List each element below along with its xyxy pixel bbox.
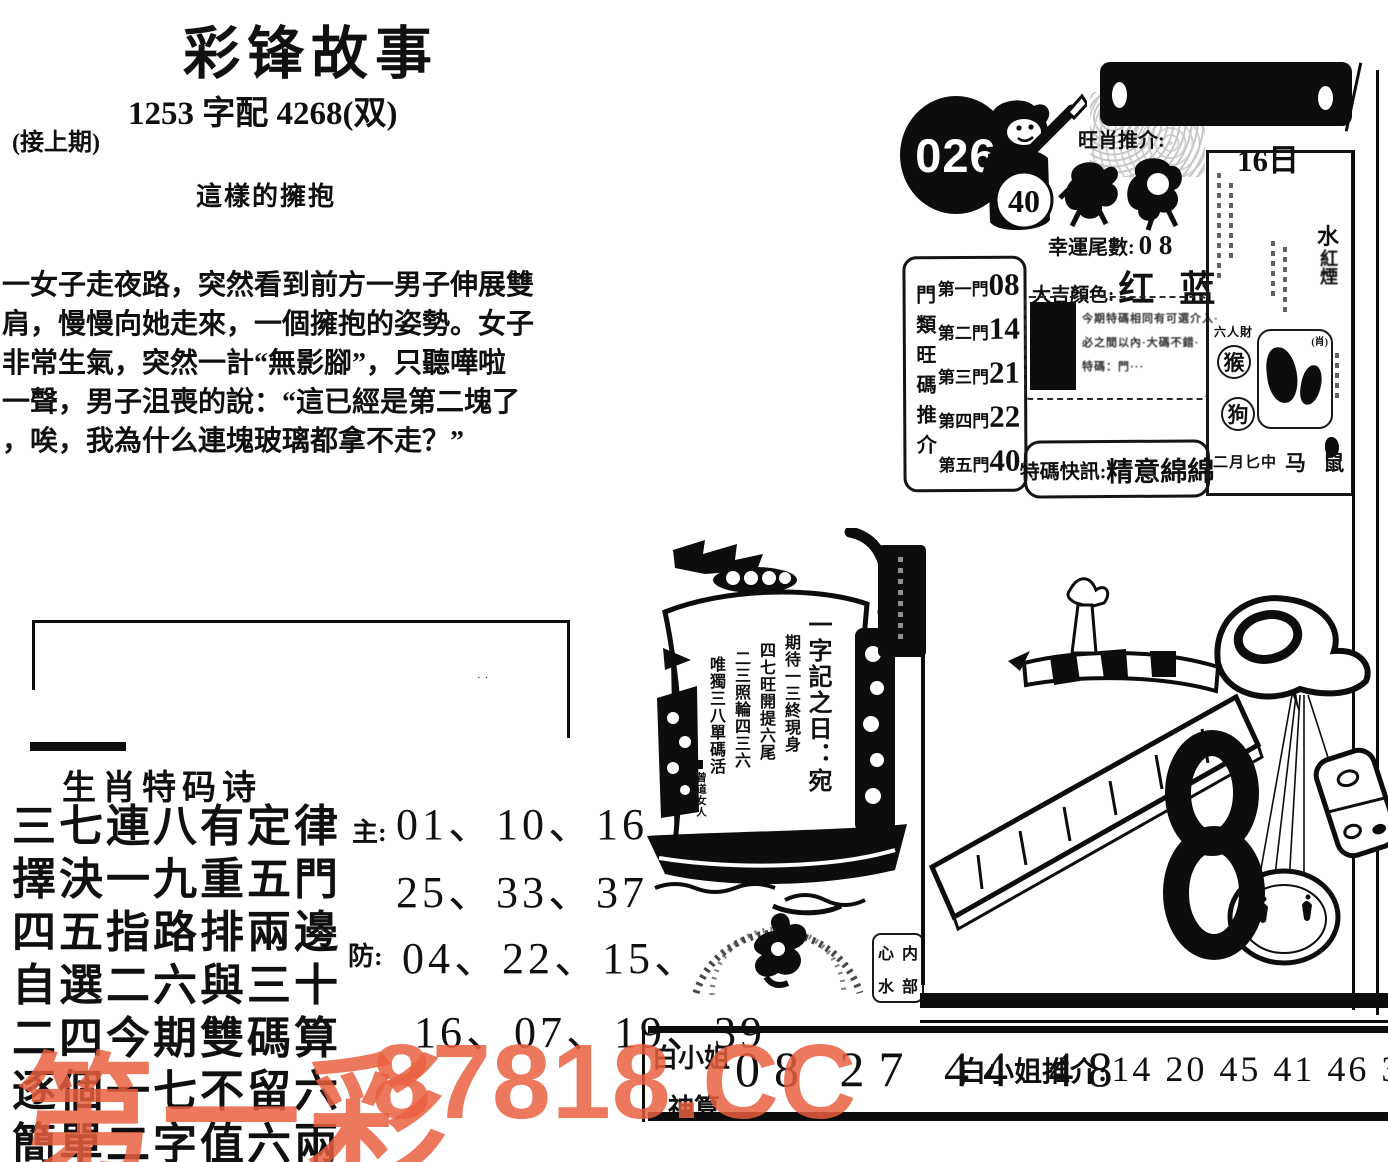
gate-num: 21 xyxy=(989,355,1020,390)
gate-name: 第三門 xyxy=(938,368,989,387)
watermark-code: 87818.CC xyxy=(372,1022,857,1143)
sail-headline: 一字記之日：宛 xyxy=(800,612,835,862)
poem-line: 四五指路排兩邊 xyxy=(12,906,341,959)
tip-note-box: 今期特碼相同有可選介入· 必之間以內·大碼不錯· 特碼：門··· xyxy=(1024,296,1208,400)
figure-eight-shape xyxy=(1176,743,1252,947)
almanac-garble-right xyxy=(1335,353,1339,401)
rule-illustration-bottom-thin xyxy=(920,1020,1388,1023)
banner-dot-left xyxy=(1112,82,1127,108)
almanac-people-note: 六人財 xyxy=(1214,323,1253,340)
gate-box-side-label: 門類旺碼推介 xyxy=(905,259,938,489)
special-code-flash-box: 特碼快訊: 精意綿綿 xyxy=(1024,439,1210,498)
issue-subtitle: 1253 字配 4268(双) xyxy=(128,86,397,134)
footer-reco-numbers: 14 20 45 41 46 30 xyxy=(1111,1049,1388,1089)
masthead-banner xyxy=(1100,62,1352,126)
story-line: 肩，慢慢向她走來，一個擁抱的姿勢。女子 xyxy=(2,305,534,344)
footer-reco-row: 白小姐推介: 14 20 45 41 46 30 xyxy=(958,1048,1388,1090)
sail-verse-line: 期待一三終現身 xyxy=(778,634,802,784)
vertical-black-label xyxy=(878,545,926,657)
key-shape xyxy=(1008,579,1368,697)
seal-char: 部 xyxy=(902,973,918,997)
lucky-tail-row: 幸運尾數: 0 8 xyxy=(1048,230,1172,261)
almanac-garble-left2 xyxy=(1229,183,1233,263)
almanac-box: 16日 水 紅煙 六人財 猴 狗 (肖) 二月匕中 马 鼠 xyxy=(1206,150,1354,496)
bracket-top-line xyxy=(32,620,570,623)
bracket-thick-bar xyxy=(30,742,126,751)
gate-name: 第五門 xyxy=(938,456,989,475)
story-title: 這樣的擁抱 xyxy=(196,176,336,213)
sail-signature: 曾道女人 xyxy=(693,772,708,832)
rule-illustration-bottom-thick xyxy=(920,993,1388,1008)
seal-char: 水 xyxy=(878,973,894,997)
stylized-zodiac-characters xyxy=(1058,150,1188,232)
story-paragraph: 一女子走夜路，突然看到前方一男子伸展雙 肩，慢慢向她走來，一個擁抱的姿勢。女子 … xyxy=(2,266,534,461)
zodiac-reco-label: 旺肖推介: xyxy=(1078,124,1165,153)
dice-shape xyxy=(1312,746,1388,860)
gate-row: 第三門21 xyxy=(938,355,1020,391)
sail-verse-line: 四七旺開提六尾 xyxy=(753,642,777,792)
gate-row: 第一門08 xyxy=(937,267,1019,303)
round-stamp-illustration xyxy=(678,893,878,1015)
almanac-xiao-mark: (肖) xyxy=(1311,333,1328,348)
almanac-animal-frame: (肖) xyxy=(1257,329,1333,429)
stray-dots: ·· xyxy=(477,672,492,684)
note-line: 必之間以內·大碼不錯· xyxy=(1082,334,1219,350)
almanac-animal-blob1 xyxy=(1264,346,1300,405)
boy-shirt-number: 40 xyxy=(1008,183,1040,219)
story-line: 一女子走夜路，突然看到前方一男子伸展雙 xyxy=(2,266,534,305)
gate-name: 第四門 xyxy=(938,412,989,431)
seal-char: 内 xyxy=(902,940,918,964)
poem-line: 三七連八有定律 xyxy=(12,800,341,853)
gate-num: 14 xyxy=(989,311,1020,346)
gate-name: 第二門 xyxy=(938,324,989,343)
gate-num: 08 xyxy=(988,267,1019,302)
gate-row: 第四門22 xyxy=(938,399,1020,435)
story-line: ，唉，我為什么連塊玻璃都拿不走？” xyxy=(2,422,534,461)
redacted-black-square xyxy=(1030,302,1076,390)
flash-value: 精意綿綿 xyxy=(1106,449,1214,489)
gate-name: 第一門 xyxy=(938,280,989,299)
almanac-garble-mid2 xyxy=(1283,247,1287,313)
rebus-illustration xyxy=(920,545,1388,993)
gate-row: 第五門40 xyxy=(938,443,1020,479)
footer-reco-label: 白小姐推介: xyxy=(958,1057,1107,1088)
guard-pick-line1: 04、22、15、 xyxy=(402,922,702,986)
note-line: 特碼：門··· xyxy=(1082,358,1219,374)
gate-num: 22 xyxy=(989,399,1020,434)
almanac-garble-left xyxy=(1217,173,1221,283)
almanac-bottom-left: 二月匕中 xyxy=(1213,451,1277,472)
bracket-left-line xyxy=(32,620,35,690)
almanac-garble-mid xyxy=(1271,241,1275,301)
gate-rows: 第一門08 第二門14 第三門21 第四門22 第五門40 xyxy=(937,259,1026,489)
gate-num: 40 xyxy=(989,443,1020,478)
almanac-animal-blob2 xyxy=(1298,364,1323,406)
poem-line: 自選二六與三十 xyxy=(12,959,341,1012)
seal-char: 心 xyxy=(878,940,894,964)
lucky-tail-label: 幸運尾數: xyxy=(1048,237,1135,259)
page-title: 彩锋故事 xyxy=(183,8,439,90)
almanac-right-column: 紅煙 xyxy=(1315,249,1341,285)
inner-seal: 心 内 水 部 xyxy=(872,933,924,1003)
bracket-right-line xyxy=(567,620,570,738)
poem-line: 擇決一九重五門 xyxy=(12,853,341,906)
flash-label: 特碼快訊: xyxy=(1020,455,1107,485)
vertical-label-garble xyxy=(898,557,903,643)
note-line: 今期特碼相同有可選介入· xyxy=(1082,310,1219,326)
almanac-zodiac-dog: 狗 xyxy=(1221,397,1255,431)
almanac-date: 16日 xyxy=(1237,135,1299,180)
signature-block-mark xyxy=(694,760,703,769)
gate-number-box: 門類旺碼推介 第一門08 第二門14 第三門21 第四門22 第五門40 xyxy=(902,256,1027,493)
story-line: 非常生氣，突然一計“無影腳”，只聽嘩啦 xyxy=(2,344,534,383)
almanac-bottom-right: 马 鼠 xyxy=(1285,447,1350,477)
tip-sheet-page: 彩锋故事 1253 字配 4268(双) (接上期) 這樣的擁抱 一女子走夜路，… xyxy=(0,0,1388,1162)
tip-note-text: 今期特碼相同有可選介入· 必之間以內·大碼不錯· 特碼：門··· xyxy=(1082,310,1219,374)
lucky-tail-value: 0 8 xyxy=(1139,230,1173,260)
main-pick-label: 主: xyxy=(352,812,387,849)
almanac-element: 水 xyxy=(1317,219,1339,251)
almanac-zodiac-monkey: 猴 xyxy=(1217,345,1251,379)
banner-dot-right xyxy=(1318,86,1333,110)
main-pick-line2: 25、33、37 xyxy=(396,856,648,920)
sail-verse-line: 二三照輪四三六 xyxy=(728,650,752,800)
guard-pick-label: 防: xyxy=(348,936,383,973)
continued-note: (接上期) xyxy=(12,122,100,157)
gate-row: 第二門14 xyxy=(938,311,1020,347)
main-pick-line1: 01、10、16 xyxy=(396,788,648,852)
story-line: 一聲，男子沮喪的說：“這已經是第二塊了 xyxy=(2,383,534,422)
